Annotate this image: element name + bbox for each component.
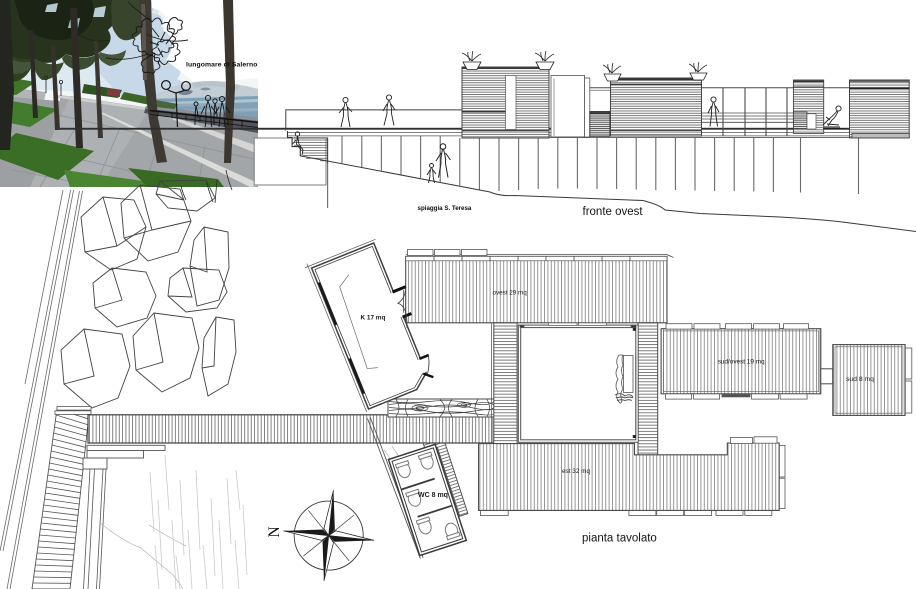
svg-text:sud 8 mq: sud 8 mq bbox=[846, 376, 874, 383]
svg-text:lungomare di Salerno: lungomare di Salerno bbox=[186, 62, 258, 69]
svg-text:fronte ovest: fronte ovest bbox=[583, 206, 644, 218]
svg-text:pianta tavolato: pianta tavolato bbox=[582, 533, 657, 545]
svg-text:est 32 mq: est 32 mq bbox=[562, 468, 591, 475]
svg-text:spiaggia S. Teresa: spiaggia S. Teresa bbox=[418, 205, 472, 212]
svg-text:WC 8 mq: WC 8 mq bbox=[418, 492, 448, 499]
svg-text:ovest 29 mq: ovest 29 mq bbox=[493, 289, 528, 296]
svg-text:sud/ovest 19 mq: sud/ovest 19 mq bbox=[718, 359, 765, 366]
svg-text:K 17 mq: K 17 mq bbox=[361, 314, 386, 321]
svg-text:N: N bbox=[266, 526, 283, 537]
